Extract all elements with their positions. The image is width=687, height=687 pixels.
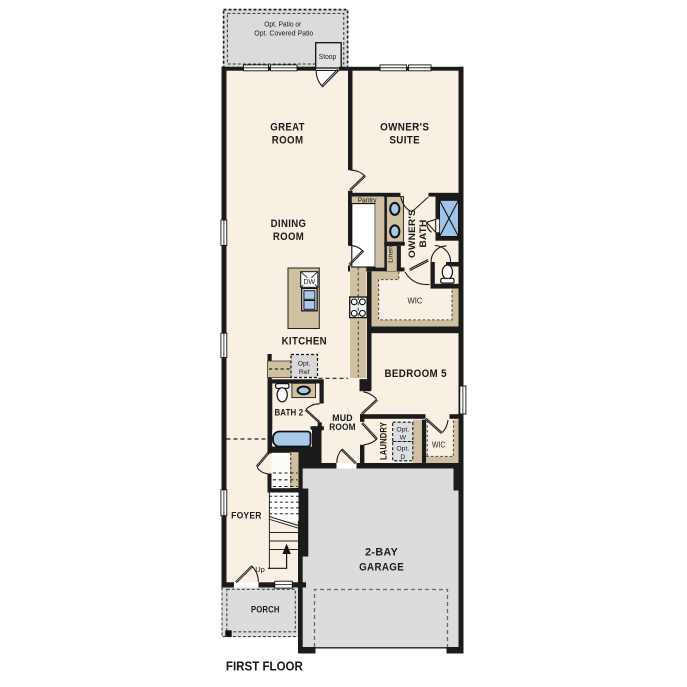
svg-text:Ref: Ref (299, 369, 310, 376)
svg-text:FOYER: FOYER (231, 511, 262, 521)
svg-text:Opt. Covered Patio: Opt. Covered Patio (254, 29, 313, 38)
svg-text:BATH: BATH (418, 219, 428, 247)
svg-text:FIRST FLOOR: FIRST FLOOR (226, 659, 304, 674)
svg-text:Opt.: Opt. (396, 446, 409, 453)
svg-text:BATH 2: BATH 2 (274, 407, 303, 417)
svg-text:LAUNDRY: LAUNDRY (379, 422, 389, 460)
svg-text:SUITE: SUITE (389, 134, 420, 146)
svg-text:ROOM: ROOM (272, 134, 304, 146)
svg-text:Pantry: Pantry (358, 197, 377, 204)
svg-text:WIC: WIC (408, 297, 423, 306)
svg-text:WIC: WIC (432, 440, 446, 449)
svg-text:Opt. Patio or: Opt. Patio or (264, 20, 301, 29)
svg-text:OWNER'S: OWNER'S (380, 122, 429, 134)
svg-text:OWNER'S: OWNER'S (407, 209, 417, 258)
svg-text:Stoop: Stoop (319, 52, 337, 61)
svg-text:Opt.: Opt. (298, 361, 311, 368)
svg-text:Linen: Linen (387, 246, 394, 263)
svg-text:GARAGE: GARAGE (359, 561, 404, 573)
svg-text:ROOM: ROOM (273, 231, 304, 243)
svg-text:2-BAY: 2-BAY (365, 547, 398, 559)
svg-text:W: W (400, 435, 407, 442)
svg-text:DINING: DINING (271, 218, 307, 230)
svg-text:PORCH: PORCH (251, 605, 280, 615)
svg-text:Opt.: Opt. (396, 426, 409, 433)
svg-text:DW: DW (303, 279, 315, 286)
svg-text:D: D (400, 454, 405, 461)
svg-text:ROOM: ROOM (329, 422, 356, 432)
svg-text:GREAT: GREAT (270, 122, 305, 134)
svg-text:BEDROOM 5: BEDROOM 5 (385, 368, 447, 380)
svg-text:KITCHEN: KITCHEN (282, 335, 327, 347)
